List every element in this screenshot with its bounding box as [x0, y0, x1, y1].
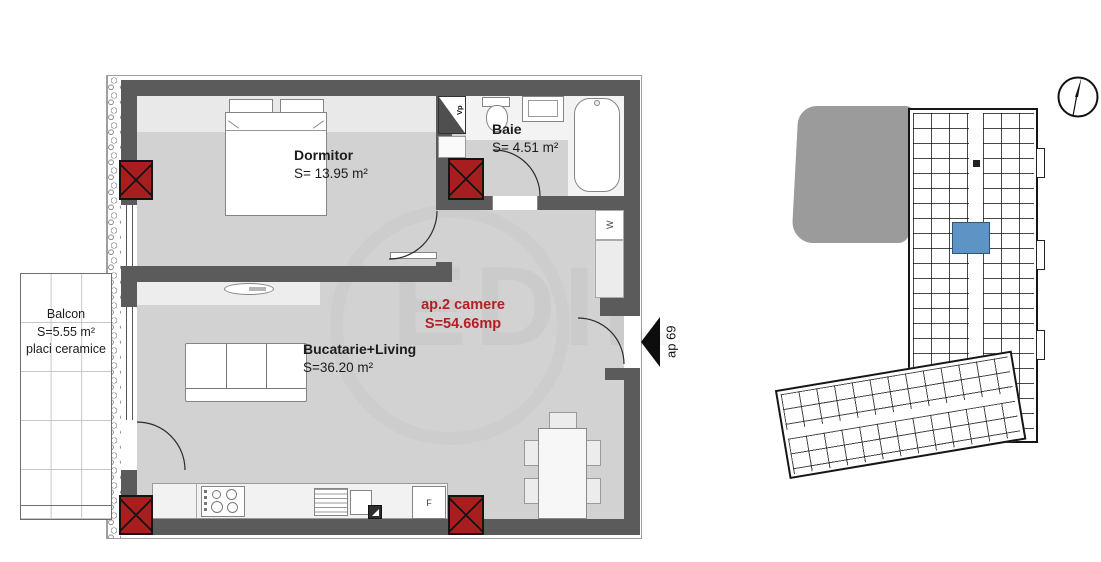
adjacent-building: [791, 106, 915, 243]
apartment-number: ap 69: [660, 314, 682, 370]
living-label: Bucatarie+Living S=36.20 m²: [303, 341, 416, 376]
apartment-type-label: ap.2 camere S=54.66mp: [398, 296, 528, 334]
living-area: S=36.20 m²: [303, 360, 373, 375]
overview-balcony-bump-3: [1036, 330, 1045, 360]
bedroom-name: Dormitor: [294, 147, 353, 163]
living-name: Bucatarie+Living: [303, 341, 416, 357]
bedroom-label: Dormitor S= 13.95 m²: [294, 147, 368, 182]
bedroom-door-arc: [389, 211, 437, 259]
highlighted-unit: [952, 222, 990, 254]
bath-door-arc: [494, 150, 540, 196]
entrance-door-arc: [578, 318, 624, 364]
bath-label: Baie S= 4.51 m²: [492, 121, 558, 156]
bedroom-area: S= 13.95 m²: [294, 166, 368, 181]
compass-icon: [1056, 75, 1100, 119]
floor-plan-page: EDIL Balcon S=5.55 m² placi ceramice: [0, 0, 1101, 562]
overview-balcony-bump-2: [1036, 240, 1045, 270]
bath-name: Baie: [492, 121, 522, 137]
balcony-door-arc: [137, 422, 185, 470]
overview-balcony-bump-1: [1036, 148, 1045, 178]
apartment-type: ap.2 camere: [398, 296, 528, 315]
bath-area: S= 4.51 m²: [492, 140, 558, 155]
overview-stair-core: [973, 160, 980, 167]
apartment-total-area: S=54.66mp: [398, 315, 528, 334]
